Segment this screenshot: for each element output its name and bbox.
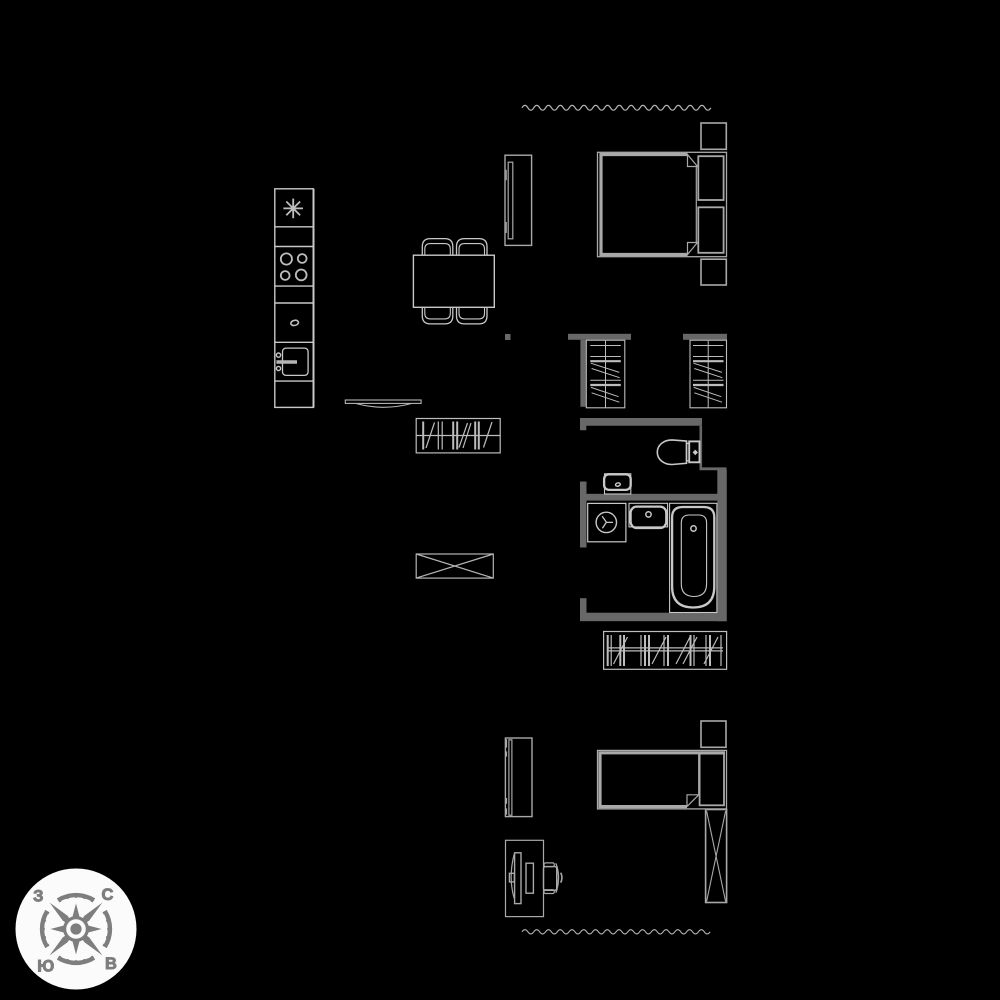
svg-text:С: С <box>101 886 113 904</box>
svg-text:З: З <box>33 888 43 906</box>
svg-text:Ю: Ю <box>37 958 54 976</box>
svg-text:В: В <box>105 955 117 973</box>
